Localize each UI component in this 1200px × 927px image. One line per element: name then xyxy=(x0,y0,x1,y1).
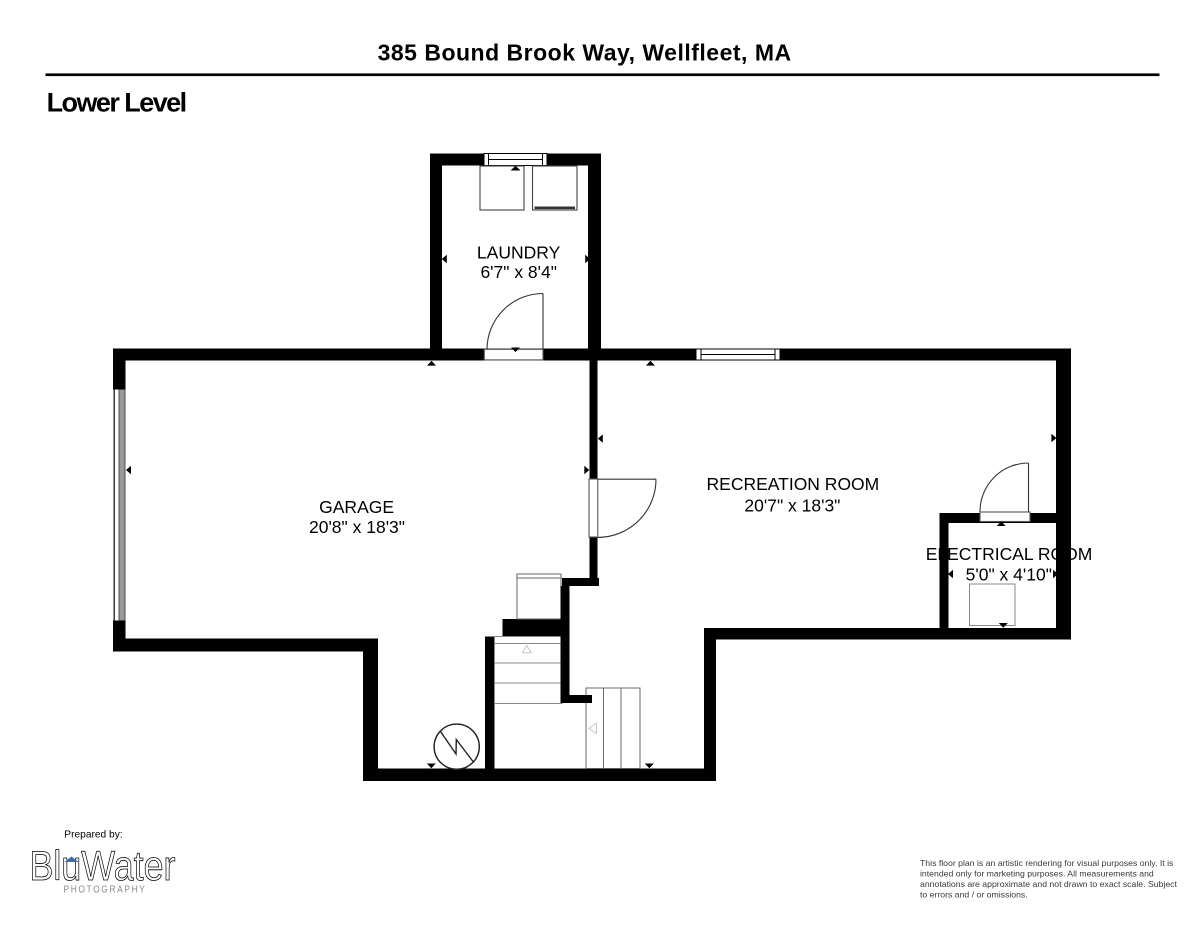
svg-text:385 Bound Brook Way, Wellfleet: 385 Bound Brook Way, Wellfleet, MA xyxy=(378,40,792,66)
svg-text:6'7" x 8'4": 6'7" x 8'4" xyxy=(480,262,557,282)
svg-text:Prepared by:: Prepared by: xyxy=(64,829,122,840)
svg-text:5'0" x 4'10": 5'0" x 4'10" xyxy=(966,565,1052,585)
svg-text:ELECTRICAL ROOM: ELECTRICAL ROOM xyxy=(926,544,1093,564)
svg-text:BluWater: BluWater xyxy=(30,842,176,889)
svg-text:This floor plan is an artistic: This floor plan is an artistic rendering… xyxy=(920,858,1174,868)
svg-text:RECREATION ROOM: RECREATION ROOM xyxy=(707,474,880,494)
svg-text:GARAGE: GARAGE xyxy=(319,497,394,517)
svg-text:20'7" x 18'3": 20'7" x 18'3" xyxy=(744,495,840,515)
svg-text:Lower Level: Lower Level xyxy=(47,88,186,118)
svg-text:LAUNDRY: LAUNDRY xyxy=(477,243,561,263)
svg-text:to errors and / or omissions.: to errors and / or omissions. xyxy=(920,890,1028,900)
svg-text:PHOTOGRAPHY: PHOTOGRAPHY xyxy=(64,884,147,896)
svg-text:20'8" x 18'3": 20'8" x 18'3" xyxy=(309,517,405,537)
svg-text:annotations are approximate an: annotations are approximate and not draw… xyxy=(920,879,1178,889)
svg-text:intended only for marketing pu: intended only for marketing purposes. Al… xyxy=(920,869,1154,879)
